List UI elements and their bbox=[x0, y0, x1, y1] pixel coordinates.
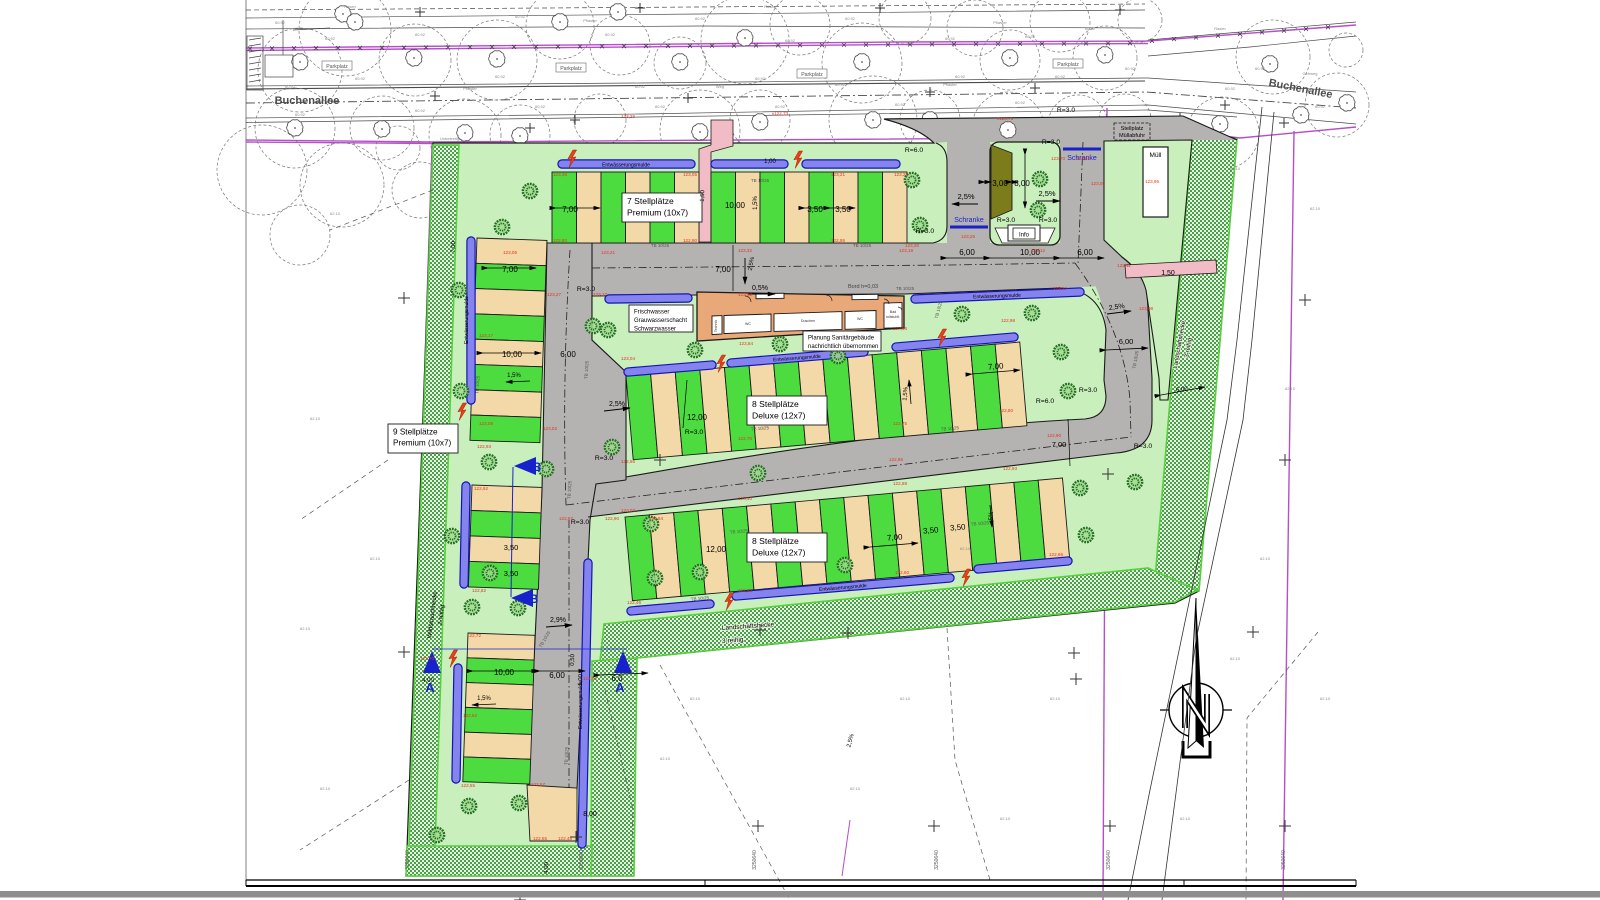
svg-text:123,29: 123,29 bbox=[621, 114, 635, 119]
svg-text:10,00: 10,00 bbox=[494, 668, 515, 677]
svg-text:60.92: 60.92 bbox=[355, 76, 366, 81]
svg-text:7,00: 7,00 bbox=[562, 205, 578, 214]
svg-text:7,00: 7,00 bbox=[715, 265, 731, 274]
svg-text:B: B bbox=[530, 592, 539, 606]
svg-text:3,50: 3,50 bbox=[950, 522, 967, 532]
svg-text:62.10: 62.10 bbox=[900, 696, 911, 701]
svg-text:62.10: 62.10 bbox=[1310, 206, 1321, 211]
svg-text:12,00: 12,00 bbox=[706, 545, 727, 554]
svg-text:8 Stellplätze: 8 Stellplätze bbox=[752, 536, 799, 546]
svg-text:Parkplatz: Parkplatz bbox=[326, 64, 348, 70]
svg-text:Rasen: Rasen bbox=[344, 4, 356, 9]
svg-text:9 Stellplätze: 9 Stellplätze bbox=[393, 428, 438, 437]
svg-text:R=3.0: R=3.0 bbox=[916, 228, 935, 235]
svg-text:Schranke: Schranke bbox=[954, 217, 984, 224]
svg-text:62.10: 62.10 bbox=[1230, 166, 1241, 171]
svg-text:122,46: 122,46 bbox=[627, 600, 641, 605]
svg-text:Deluxe (12x7): Deluxe (12x7) bbox=[752, 547, 806, 557]
svg-text:7 Stellplätze: 7 Stellplätze bbox=[627, 196, 674, 206]
svg-text:122,88: 122,88 bbox=[893, 481, 907, 486]
svg-text:Entwässerungsmulde: Entwässerungsmulde bbox=[578, 681, 584, 729]
svg-text:Unbefestigt: Unbefestigt bbox=[440, 136, 461, 141]
svg-text:6,00: 6,00 bbox=[1119, 337, 1134, 346]
svg-text:6,00: 6,00 bbox=[549, 671, 565, 680]
svg-text:Parkplatz: Parkplatz bbox=[1057, 62, 1079, 68]
svg-text:3250640: 3250640 bbox=[752, 850, 758, 870]
svg-text:7,00: 7,00 bbox=[887, 532, 904, 542]
svg-text:Pflaster: Pflaster bbox=[943, 82, 957, 87]
svg-text:123,05: 123,05 bbox=[683, 172, 697, 177]
svg-text:3,50: 3,50 bbox=[807, 205, 823, 214]
svg-text:123,25: 123,25 bbox=[894, 172, 908, 177]
svg-text:R=6.0: R=6.0 bbox=[905, 147, 924, 154]
svg-text:2,9%: 2,9% bbox=[550, 617, 566, 624]
svg-text:2,5%: 2,5% bbox=[609, 401, 625, 408]
svg-text:Parkplatz: Parkplatz bbox=[801, 72, 823, 78]
svg-text:3,50: 3,50 bbox=[504, 543, 519, 552]
svg-text:v122,73: v122,73 bbox=[772, 111, 789, 116]
svg-text:122,98: 122,98 bbox=[1001, 318, 1015, 323]
svg-text:123,25: 123,25 bbox=[961, 234, 975, 239]
svg-text:TB 10\25: TB 10\25 bbox=[853, 243, 872, 248]
svg-text:122,85: 122,85 bbox=[889, 457, 903, 462]
svg-text:8 Stellplätze: 8 Stellplätze bbox=[752, 399, 799, 409]
svg-text:123,05: 123,05 bbox=[503, 250, 517, 255]
svg-text:B: B bbox=[533, 460, 542, 474]
svg-text:nachrichtlich übernommen: nachrichtlich übernommen bbox=[808, 344, 878, 350]
svg-text:122,92: 122,92 bbox=[474, 486, 488, 491]
svg-text:122,66: 122,66 bbox=[621, 459, 635, 464]
svg-text:12,00: 12,00 bbox=[687, 413, 708, 422]
svg-text:122,90: 122,90 bbox=[683, 238, 697, 243]
svg-text:62.10: 62.10 bbox=[690, 696, 701, 701]
svg-text:R=3.0: R=3.0 bbox=[1079, 387, 1098, 394]
svg-text:Grauwasserschacht: Grauwasserschacht bbox=[634, 318, 687, 324]
svg-text:123,02: 123,02 bbox=[738, 292, 752, 297]
svg-text:4,00: 4,00 bbox=[544, 861, 551, 874]
svg-text:122,82: 122,82 bbox=[472, 588, 486, 593]
svg-text:122,80: 122,80 bbox=[553, 238, 567, 243]
svg-text:Pflaster: Pflaster bbox=[463, 86, 477, 91]
svg-text:62.10: 62.10 bbox=[1285, 386, 1296, 391]
svg-text:123,08: 123,08 bbox=[479, 421, 493, 426]
svg-text:Planung Sanitärgebäude: Planung Sanitärgebäude bbox=[808, 336, 875, 342]
svg-text:60.92: 60.92 bbox=[1225, 86, 1236, 91]
svg-text:Bad: Bad bbox=[890, 310, 896, 314]
svg-text:TB 10\25: TB 10\25 bbox=[751, 178, 770, 183]
svg-text:60.92: 60.92 bbox=[605, 32, 616, 37]
svg-text:Duschen: Duschen bbox=[801, 319, 815, 323]
svg-text:R=3.0: R=3.0 bbox=[1057, 107, 1076, 114]
svg-text:Gehweg: Gehweg bbox=[1303, 71, 1318, 76]
svg-text:10,00: 10,00 bbox=[502, 350, 523, 359]
svg-text:123,62: 123,62 bbox=[1076, 156, 1090, 161]
svg-text:62.10: 62.10 bbox=[300, 626, 311, 631]
svg-text:60.92: 60.92 bbox=[785, 38, 796, 43]
svg-text:8,00: 8,00 bbox=[583, 811, 597, 818]
svg-text:123,12: 123,12 bbox=[1031, 248, 1045, 253]
svg-text:60.92: 60.92 bbox=[1135, 40, 1146, 45]
svg-text:5%: 5% bbox=[989, 511, 995, 520]
svg-text:1,00: 1,00 bbox=[764, 159, 776, 165]
svg-text:123,03: 123,03 bbox=[621, 508, 635, 513]
svg-text:60.92: 60.92 bbox=[515, 14, 526, 19]
svg-text:123,08: 123,08 bbox=[1091, 181, 1105, 186]
svg-text:62.10: 62.10 bbox=[310, 416, 321, 421]
svg-text:R=3.0: R=3.0 bbox=[1134, 443, 1153, 450]
svg-text:60.92: 60.92 bbox=[1125, 66, 1136, 71]
svg-text:3,50: 3,50 bbox=[504, 569, 519, 578]
svg-text:6,0: 6,0 bbox=[611, 674, 623, 683]
svg-text:123,17: 123,17 bbox=[479, 333, 493, 338]
svg-text:60.92: 60.92 bbox=[945, 36, 956, 41]
svg-text:7,00: 7,00 bbox=[451, 240, 458, 253]
svg-text:122,70: 122,70 bbox=[738, 436, 752, 441]
svg-text:62.10: 62.10 bbox=[1260, 556, 1271, 561]
svg-text:3250640: 3250640 bbox=[405, 850, 411, 870]
svg-text:60.92: 60.92 bbox=[845, 16, 856, 21]
svg-text:62.10: 62.10 bbox=[320, 786, 331, 791]
svg-text:122,95: 122,95 bbox=[831, 238, 845, 243]
svg-text:WC: WC bbox=[857, 317, 863, 321]
svg-text:62.10: 62.10 bbox=[1230, 656, 1241, 661]
svg-text:Stellplatz: Stellplatz bbox=[1121, 126, 1144, 132]
svg-text:123,11: 123,11 bbox=[1117, 263, 1131, 268]
svg-text:Müllabfuhr: Müllabfuhr bbox=[1119, 133, 1145, 139]
svg-text:62.10: 62.10 bbox=[960, 546, 971, 551]
svg-text:TB 10\25: TB 10\25 bbox=[651, 243, 670, 248]
svg-text:60.92: 60.92 bbox=[1085, 26, 1096, 31]
svg-text:Pflaster: Pflaster bbox=[993, 20, 1007, 25]
svg-text:Pflaster: Pflaster bbox=[583, 18, 597, 23]
svg-text:10,00: 10,00 bbox=[725, 201, 746, 210]
svg-text:122,90: 122,90 bbox=[1047, 433, 1061, 438]
svg-text:1,5%: 1,5% bbox=[902, 386, 909, 401]
svg-text:60.92: 60.92 bbox=[635, 84, 646, 89]
svg-text:62.10: 62.10 bbox=[1180, 816, 1191, 821]
svg-text:123,30: 123,30 bbox=[905, 243, 919, 248]
svg-text:Müll: Müll bbox=[1150, 152, 1162, 159]
svg-text:2,5%: 2,5% bbox=[957, 192, 974, 201]
svg-text:8,00: 8,00 bbox=[1014, 179, 1030, 188]
svg-text:123,17: 123,17 bbox=[593, 292, 607, 297]
svg-text:R=6.0: R=6.0 bbox=[1036, 398, 1055, 405]
svg-text:62.10: 62.10 bbox=[850, 786, 861, 791]
svg-text:62.10: 62.10 bbox=[370, 556, 381, 561]
svg-text:1,50: 1,50 bbox=[1161, 270, 1175, 277]
svg-text:1,5%: 1,5% bbox=[477, 696, 491, 702]
svg-text:TB 10\25: TB 10\25 bbox=[584, 360, 590, 379]
svg-text:0,5%: 0,5% bbox=[752, 285, 768, 292]
svg-text:TB 10\25: TB 10\25 bbox=[567, 480, 573, 499]
svg-text:3,50: 3,50 bbox=[835, 205, 851, 214]
svg-text:60.92: 60.92 bbox=[535, 104, 546, 109]
svg-text:122,55: 122,55 bbox=[461, 783, 475, 788]
svg-text:60.92: 60.92 bbox=[835, 82, 846, 87]
svg-text:122,60: 122,60 bbox=[895, 570, 909, 575]
svg-text:Buchenallee: Buchenallee bbox=[275, 95, 340, 107]
svg-text:3250640: 3250640 bbox=[579, 850, 585, 870]
svg-text:7,00: 7,00 bbox=[988, 361, 1005, 371]
svg-text:60.92: 60.92 bbox=[495, 74, 506, 79]
svg-text:62.10: 62.10 bbox=[660, 756, 671, 761]
svg-text:TB 10\25: TB 10\25 bbox=[896, 286, 915, 291]
svg-text:60.92: 60.92 bbox=[415, 32, 426, 37]
svg-text:1,5%: 1,5% bbox=[507, 373, 521, 379]
svg-text:60.92: 60.92 bbox=[415, 108, 426, 113]
svg-text:2,5%: 2,5% bbox=[1038, 189, 1055, 198]
svg-text:7,00: 7,00 bbox=[502, 265, 518, 274]
svg-text:60.92: 60.92 bbox=[325, 36, 336, 41]
svg-text:122,80: 122,80 bbox=[999, 408, 1013, 413]
svg-text:123,21: 123,21 bbox=[601, 250, 615, 255]
svg-text:60.92: 60.92 bbox=[1025, 34, 1036, 39]
svg-text:Parkplatz: Parkplatz bbox=[560, 66, 582, 72]
svg-text:Rasen: Rasen bbox=[764, 4, 776, 9]
svg-text:122,66: 122,66 bbox=[1049, 552, 1063, 557]
svg-text:1,5%: 1,5% bbox=[753, 196, 759, 210]
svg-text:Schwarzwasser: Schwarzwasser bbox=[634, 327, 676, 333]
svg-text:123,56: 123,56 bbox=[893, 326, 907, 331]
svg-text:122,93: 122,93 bbox=[477, 444, 491, 449]
svg-text:Technik: Technik bbox=[714, 320, 718, 332]
svg-text:R=3.0: R=3.0 bbox=[1042, 139, 1061, 146]
svg-text:R=3.0: R=3.0 bbox=[685, 429, 704, 436]
svg-text:123,70: 123,70 bbox=[1051, 156, 1065, 161]
svg-text:7,00: 7,00 bbox=[1052, 440, 1067, 449]
svg-text:122,55: 122,55 bbox=[533, 836, 547, 841]
svg-text:60.92: 60.92 bbox=[285, 84, 296, 89]
svg-text:60.92: 60.92 bbox=[755, 76, 766, 81]
svg-text:123,21: 123,21 bbox=[831, 172, 845, 177]
svg-text:62.10: 62.10 bbox=[1000, 816, 1011, 821]
svg-text:v123,75: v123,75 bbox=[997, 116, 1014, 121]
svg-text:R=3.0: R=3.0 bbox=[571, 519, 590, 526]
svg-text:123,12: 123,12 bbox=[1053, 286, 1067, 291]
svg-text:122,93: 122,93 bbox=[1003, 466, 1017, 471]
svg-text:60.92: 60.92 bbox=[695, 16, 706, 21]
svg-text:123,10: 123,10 bbox=[738, 496, 752, 501]
svg-text:60.92: 60.92 bbox=[1015, 100, 1026, 105]
svg-text:122,72: 122,72 bbox=[467, 633, 481, 638]
svg-text:Rasen: Rasen bbox=[1214, 26, 1226, 31]
svg-text:123,18: 123,18 bbox=[899, 248, 913, 253]
svg-text:122,60: 122,60 bbox=[583, 676, 597, 681]
svg-text:Frischwasser: Frischwasser bbox=[634, 310, 669, 316]
svg-text:62.10: 62.10 bbox=[330, 211, 341, 216]
svg-text:3250640: 3250640 bbox=[1106, 850, 1112, 870]
svg-text:122,75: 122,75 bbox=[893, 421, 907, 426]
svg-text:Weg: Weg bbox=[716, 84, 724, 89]
svg-text:Premium (10x7): Premium (10x7) bbox=[627, 207, 688, 217]
svg-text:123,84: 123,84 bbox=[739, 341, 753, 346]
svg-text:60.92: 60.92 bbox=[955, 74, 966, 79]
svg-text:60.92: 60.92 bbox=[275, 20, 286, 25]
svg-text:3,00: 3,00 bbox=[992, 179, 1008, 188]
svg-text:122,84: 122,84 bbox=[649, 516, 663, 521]
svg-text:R=3.0: R=3.0 bbox=[997, 217, 1016, 224]
svg-text:WC: WC bbox=[745, 322, 751, 326]
svg-text:4,00: 4,00 bbox=[422, 678, 434, 684]
svg-text:6,00: 6,00 bbox=[959, 248, 975, 257]
svg-text:123,08: 123,08 bbox=[1139, 306, 1153, 311]
svg-text:3,50: 3,50 bbox=[923, 525, 940, 535]
svg-text:6,00: 6,00 bbox=[1077, 248, 1093, 257]
svg-text:Info: Info bbox=[1019, 233, 1030, 239]
svg-text:60.92: 60.92 bbox=[895, 102, 906, 107]
svg-text:60.92: 60.92 bbox=[1315, 104, 1326, 109]
svg-text:3250640: 3250640 bbox=[934, 850, 940, 870]
svg-text:123,32: 123,32 bbox=[738, 248, 752, 253]
svg-text:TB 10\25: TB 10\25 bbox=[564, 746, 570, 765]
svg-text:62.10: 62.10 bbox=[1320, 696, 1331, 701]
svg-text:TB 10\25: TB 10\25 bbox=[475, 375, 481, 394]
svg-text:123,04: 123,04 bbox=[621, 356, 635, 361]
svg-text:60.92: 60.92 bbox=[1055, 74, 1066, 79]
svg-text:123,36: 123,36 bbox=[553, 172, 567, 177]
svg-text:3250640: 3250640 bbox=[1281, 850, 1287, 870]
svg-text:6,00: 6,00 bbox=[560, 350, 576, 359]
svg-text:Entwässerungsmulde: Entwässerungsmulde bbox=[602, 163, 650, 169]
svg-text:122,57: 122,57 bbox=[531, 782, 545, 787]
svg-text:0,50: 0,50 bbox=[570, 653, 577, 666]
svg-text:Deluxe (12x7): Deluxe (12x7) bbox=[752, 410, 806, 420]
svg-text:122,87: 122,87 bbox=[559, 516, 573, 521]
svg-text:Premium (10x7): Premium (10x7) bbox=[393, 439, 452, 448]
svg-text:60.92: 60.92 bbox=[295, 112, 306, 117]
svg-text:rollstuhlf.: rollstuhlf. bbox=[886, 315, 900, 319]
svg-text:123,02: 123,02 bbox=[543, 426, 557, 431]
svg-text:60.92: 60.92 bbox=[775, 104, 786, 109]
svg-text:122,90: 122,90 bbox=[605, 516, 619, 521]
svg-text:123,27: 123,27 bbox=[547, 292, 561, 297]
svg-text:1,50: 1,50 bbox=[700, 189, 707, 202]
svg-text:R=3.0: R=3.0 bbox=[595, 455, 614, 462]
svg-text:122,52: 122,52 bbox=[738, 588, 752, 593]
svg-text:122,70: 122,70 bbox=[420, 656, 434, 661]
svg-text:122,62: 122,62 bbox=[463, 713, 477, 718]
svg-text:123,95: 123,95 bbox=[1145, 179, 1159, 184]
svg-text:R=3.0: R=3.0 bbox=[1039, 217, 1058, 224]
svg-text:62.10: 62.10 bbox=[1050, 696, 1061, 701]
svg-text:60.92: 60.92 bbox=[655, 104, 666, 109]
svg-text:Bord h=0,03: Bord h=0,03 bbox=[848, 284, 878, 290]
svg-text:Entwässerungsmulde: Entwässerungsmulde bbox=[464, 296, 470, 344]
svg-text:60.92: 60.92 bbox=[1255, 66, 1266, 71]
